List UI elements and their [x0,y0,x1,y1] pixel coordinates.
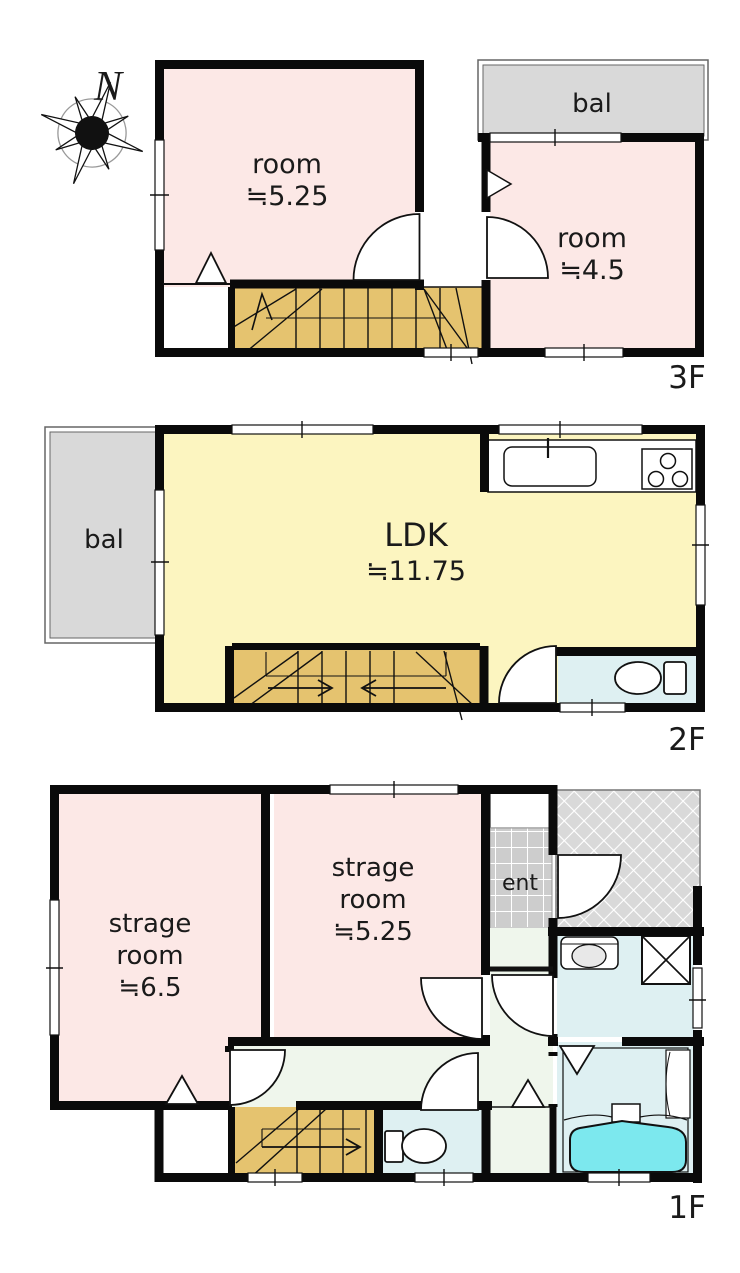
room-3f-a-area: ≒5.25 [246,181,329,212]
room-3f-a-name: room [252,149,322,180]
storage-b-area: ≒5.25 [333,917,413,947]
storage-b-name-line1: strage [332,853,415,883]
compass-icon: N [23,64,161,202]
ldk-area: ≒11.75 [366,556,466,587]
sink-icon [504,447,596,486]
storage-a-name-line2: room [116,941,183,971]
vanity-icon [561,937,618,969]
hallway-lower-floor [490,1107,549,1178]
toilet-icon-1f [385,1129,446,1163]
hall-3f-floor [415,205,490,290]
closet-3f-floor [162,287,230,352]
storage-b-name-line2: room [339,885,406,915]
bath-faucet [612,1104,640,1122]
entrance-closet [490,790,552,828]
toilet-icon-2f [615,662,686,694]
floor-label-1f: 1F [668,1190,706,1226]
stairs-1f [233,1107,374,1178]
ldk-name: LDK [384,516,448,554]
room-3f-b-area: ≒4.5 [559,255,625,286]
storage-a-area: ≒6.5 [118,973,181,1003]
floor-plan-page: N [0,0,740,1273]
floor-plan-3f: room ≒5.25 room ≒4.5 bal 3F [150,60,708,396]
floor-plan-drawing: N [0,0,740,1273]
room-3f-b-name: room [557,223,627,254]
floor-label-3f: 3F [668,360,706,396]
floor-label-2f: 2F [668,722,706,758]
floor-plan-2f: LDK ≒11.75 bal 2F [45,421,709,758]
bath-panel [666,1050,690,1118]
entrance-label: ent [502,871,538,896]
floor-plan-1f: strage room ≒6.5 strage room ≒5.25 ent 1… [46,781,706,1226]
washer-pan-icon [642,936,690,984]
north-label: N [93,64,124,110]
closet-1f-floor [163,1108,228,1178]
balcony-2f-label: bal [84,525,124,555]
balcony-3f-label: bal [572,89,612,119]
bathtub-icon [570,1121,686,1172]
storage-a-name-line1: strage [109,909,192,939]
